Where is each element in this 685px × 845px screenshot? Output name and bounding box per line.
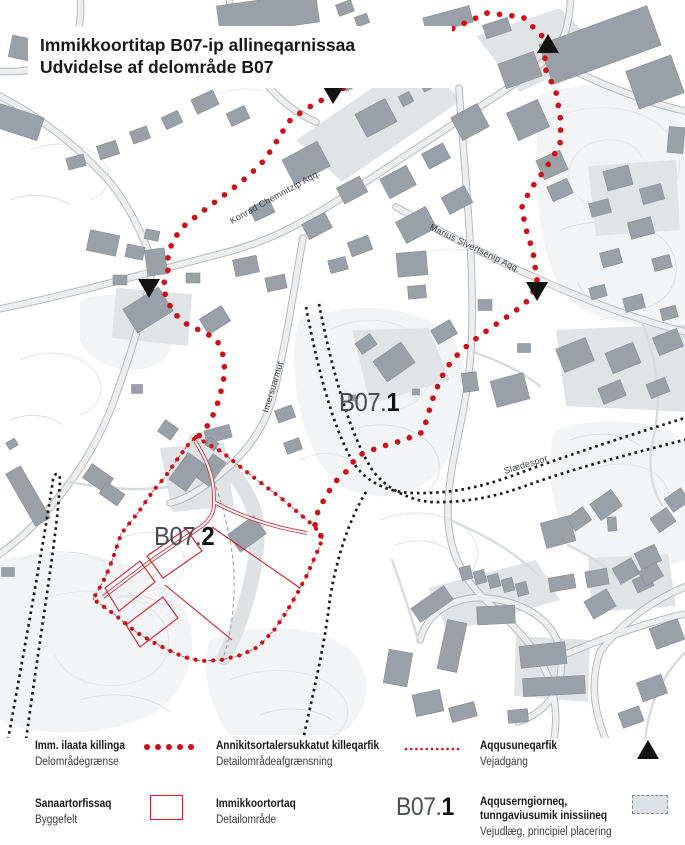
road-access-triangle xyxy=(526,282,548,301)
legend-item-detail-boundary: Annikitsortalersukkatut killeqarfik Deta… xyxy=(216,739,379,769)
title-box: Immikkoortitap B07-ip allineqarnissaa Ud… xyxy=(28,26,452,88)
road-access-triangle-icon xyxy=(637,740,659,759)
fine-red-dots-icon xyxy=(404,746,460,752)
page-title-line1: Immikkoortitap B07-ip allineqarnissaa xyxy=(40,34,452,56)
legend-item-subarea-boundary: Imm. ilaata killinga Delområdegrænse xyxy=(35,739,125,769)
area-label-b07-2: B07.2 xyxy=(154,522,214,551)
legend-item-road-access: Aqqusuneqarfik Vejadgang xyxy=(480,739,557,769)
plan-map-document: Konrad Chemnitzip Aqq. Marius Sivertseni… xyxy=(0,0,685,845)
legend-item-detail-area: Immikkoortortaq Detailområde xyxy=(216,797,296,827)
legend-item-building-plot: Sanaartorfissaq Byggefelt xyxy=(35,797,112,827)
area-label-b07-1: B07.1 xyxy=(339,388,400,417)
legend-item-road-reservation: Aqquserngiorneq, tunngaviusumik inissiin… xyxy=(480,795,635,839)
building-plot-rect-icon xyxy=(150,795,183,820)
site-plan-map: Konrad Chemnitzip Aqq. Marius Sivertseni… xyxy=(0,0,685,738)
large-red-dots-icon xyxy=(142,742,196,752)
street-label-slaedespor: Slædespor xyxy=(503,453,549,476)
area-code-sample: B07.1 xyxy=(396,793,454,822)
road-reservation-swatch-icon xyxy=(632,795,668,814)
page-title-line2: Udvidelse af delområde B07 xyxy=(40,56,452,78)
